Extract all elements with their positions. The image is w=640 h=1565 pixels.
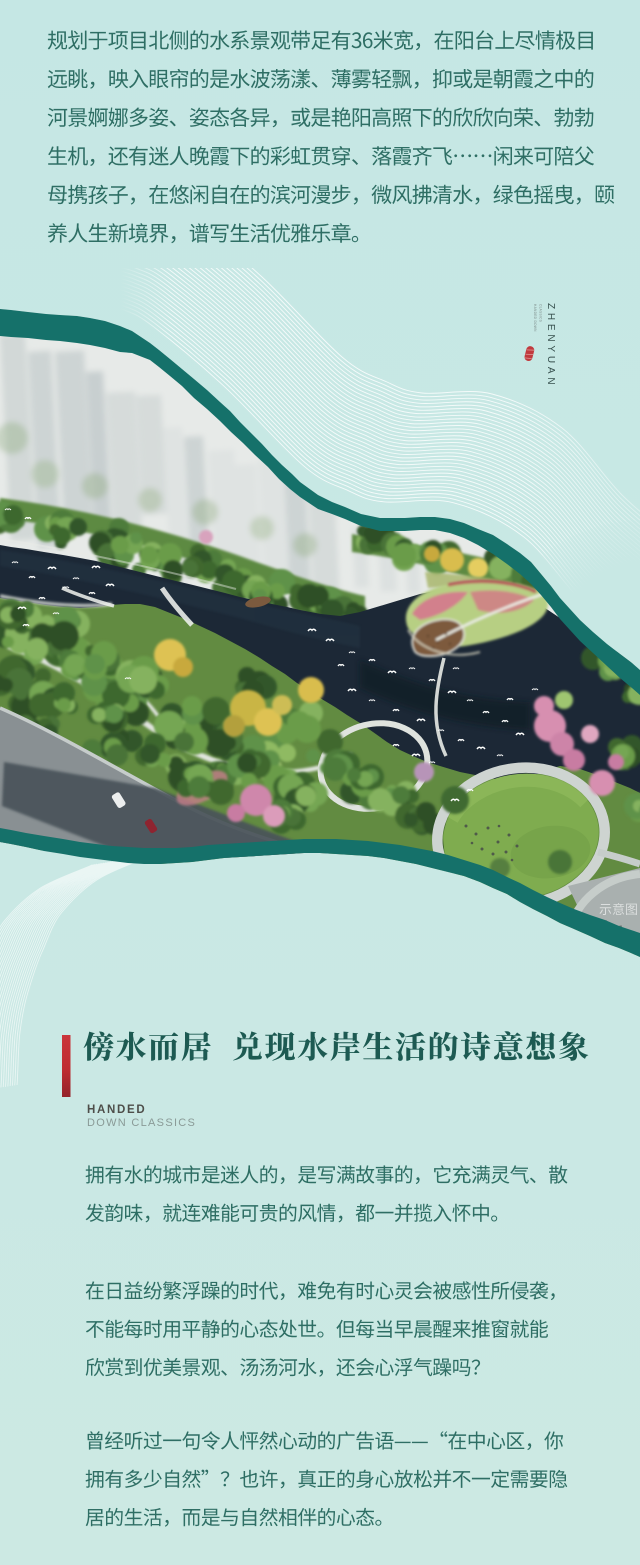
- svg-text:CLASSICS: CLASSICS: [539, 304, 543, 322]
- svg-text:HANDED DOWN: HANDED DOWN: [533, 304, 537, 332]
- svg-text:HANDED: HANDED: [87, 1104, 146, 1116]
- svg-text:DOWN CLASSICS: DOWN CLASSICS: [87, 1117, 196, 1129]
- svg-text:ZHENYUAN: ZHENYUAN: [545, 303, 556, 388]
